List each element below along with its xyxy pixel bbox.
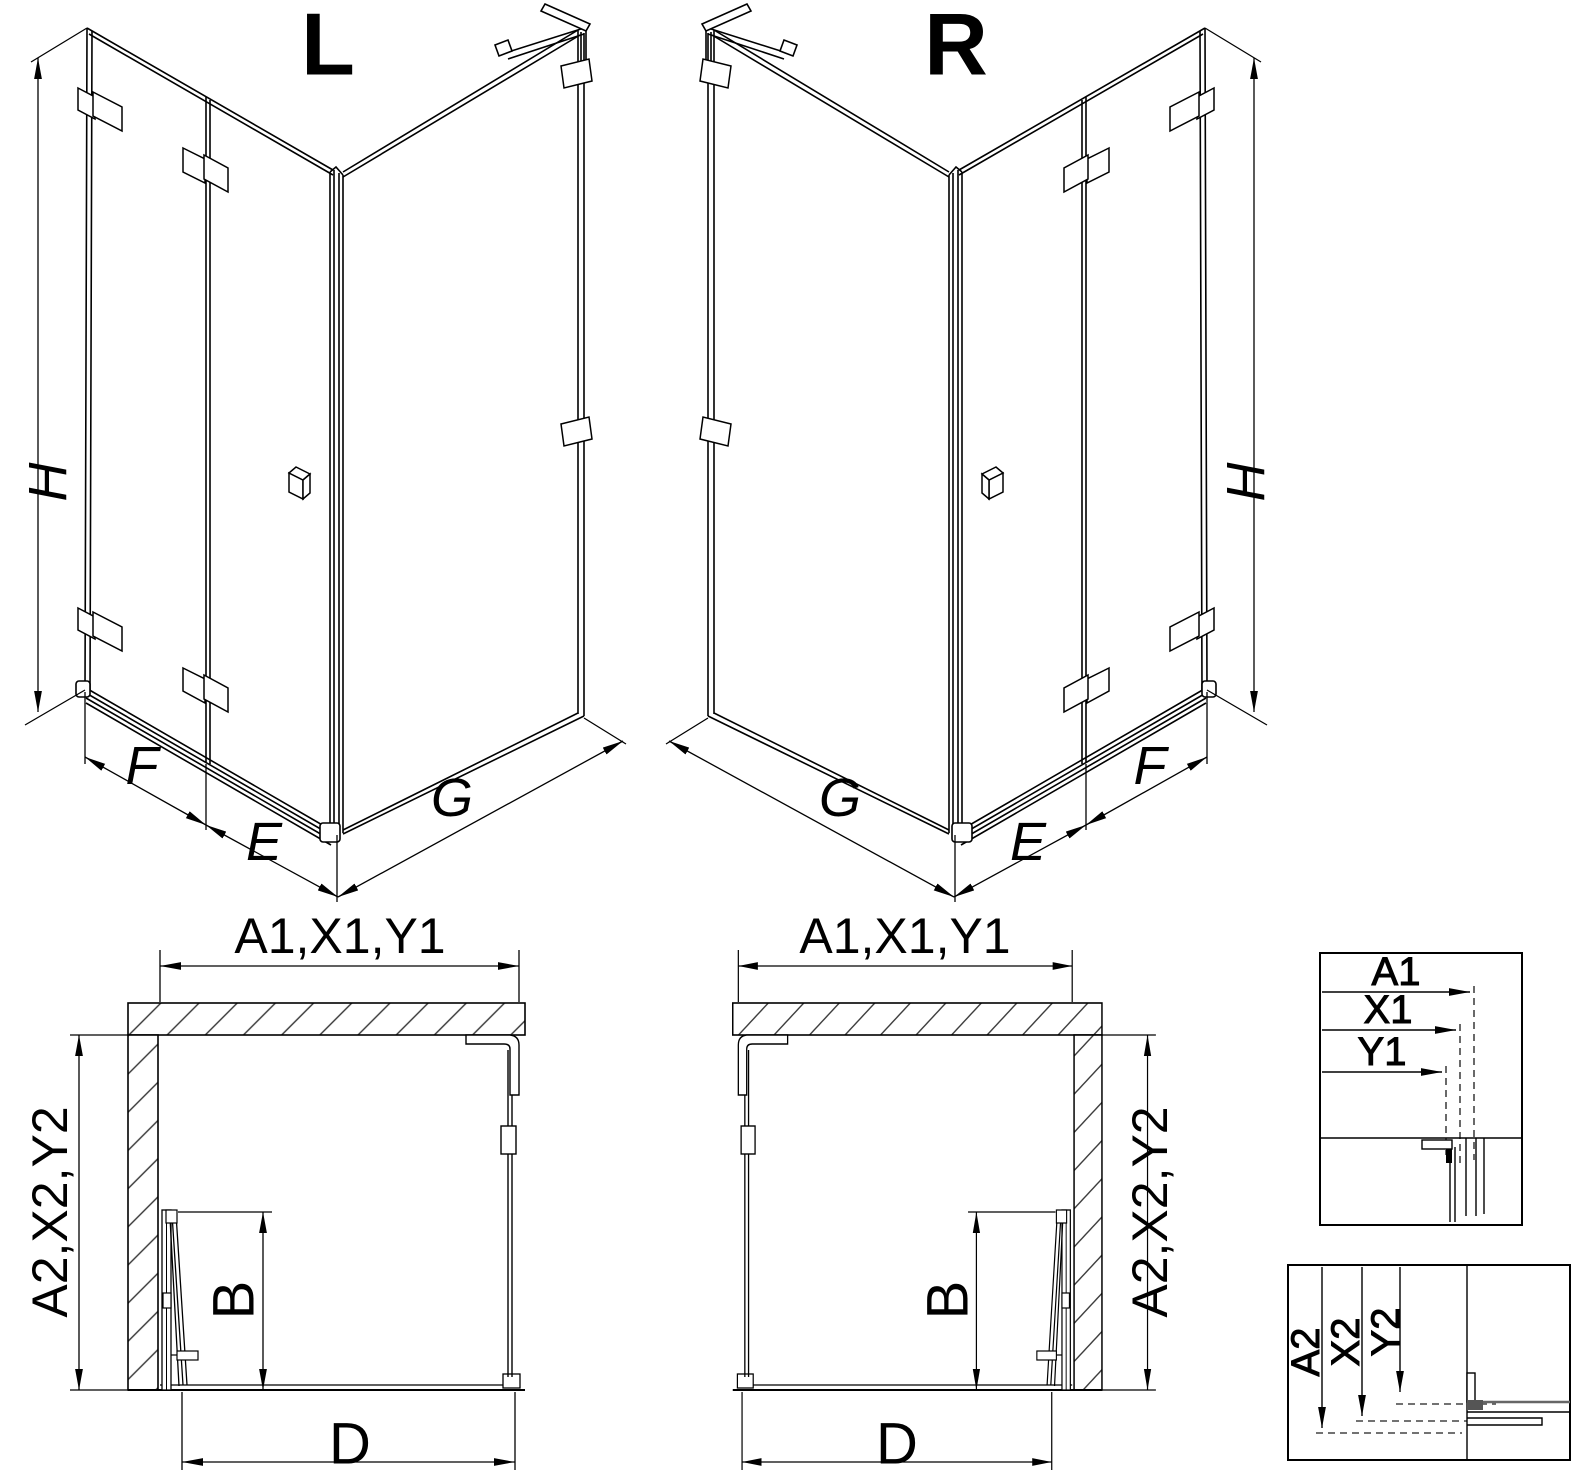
plan-view-right: A1,X1,Y1 A2,X2,Y2 B D (733, 908, 1178, 1477)
detail-depth-profile (1467, 1265, 1570, 1460)
plan-right-door-label: B (916, 1281, 981, 1320)
detail-width-label-3: Y1 (1358, 1030, 1407, 1074)
height-dim-label-right: H (1216, 462, 1276, 502)
detail-width-dashed-lines (1446, 986, 1474, 1166)
plan-right-entry-label: D (876, 1412, 918, 1477)
plan-right-width-label: A1,X1,Y1 (799, 908, 1010, 964)
width-dim-label-right-1: G (819, 768, 861, 828)
plan-left-depth-label: A2,X2,Y2 (22, 1106, 78, 1317)
detail-depth-label-2: X2 (1324, 1318, 1368, 1367)
plan-left-door-label: B (202, 1281, 267, 1320)
plan-right-depth-label: A2,X2,Y2 (1122, 1106, 1178, 1317)
width-dim-label-left-2: E (246, 812, 283, 872)
drawing-page: L H F E G R H G E F A1,X1,Y1 A2,X2,Y2 B … (0, 0, 1581, 1479)
detail-box-width: A1 X1 Y1 (1320, 950, 1522, 1225)
iso-view-left: L H F E G (18, 0, 626, 902)
iso-view-right: R H G E F (666, 0, 1276, 902)
detail-width-profile (1320, 1138, 1522, 1222)
variant-label-left: L (301, 0, 355, 94)
plan-left-width-label: A1,X1,Y1 (234, 908, 445, 964)
width-dim-label-left-3: G (431, 768, 473, 828)
width-dim-label-right-3: F (1134, 736, 1170, 796)
plan-view-left: A1,X1,Y1 A2,X2,Y2 B D (22, 908, 525, 1477)
height-dim-label-left: H (18, 462, 78, 502)
detail-width-label-2: X1 (1364, 988, 1413, 1032)
detail-box-depth: A2 X2 Y2 (1284, 1265, 1570, 1460)
variant-label-right: R (924, 0, 988, 94)
plan-left-entry-label: D (329, 1412, 371, 1477)
width-dim-label-left-1: F (126, 736, 162, 796)
technical-drawing: L H F E G R H G E F A1,X1,Y1 A2,X2,Y2 B … (0, 0, 1581, 1479)
detail-depth-label-1: A2 (1284, 1328, 1328, 1377)
detail-depth-label-3: Y2 (1364, 1308, 1408, 1357)
width-dim-label-right-2: E (1010, 812, 1047, 872)
